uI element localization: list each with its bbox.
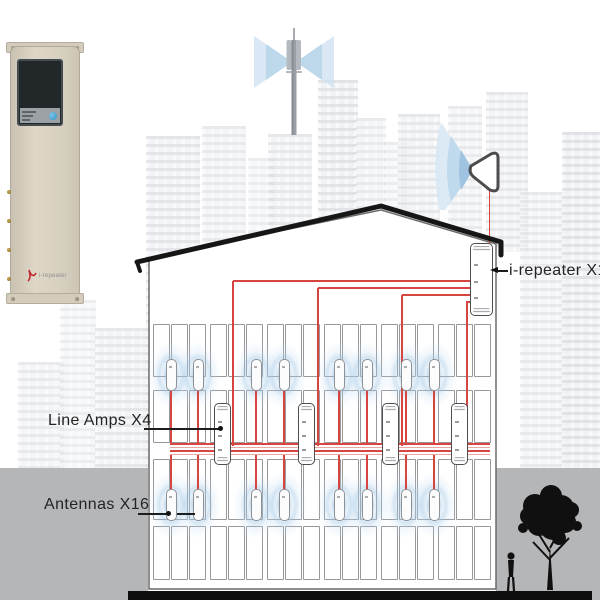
device-port (455, 421, 459, 423)
device-port (218, 421, 222, 423)
antenna-mark (282, 496, 285, 498)
antenna-mark (196, 366, 199, 368)
antenna-device (251, 359, 262, 391)
antenna-mark (169, 496, 172, 498)
signal-coverage-diagram: i-repeater i-repeater X1 Line Amps X4 An… (0, 0, 600, 600)
line-amp-device (298, 403, 315, 465)
antenna-mark (196, 496, 199, 498)
device-port (386, 449, 390, 451)
donor-antenna-icon (425, 110, 505, 210)
antenna-mark (432, 366, 435, 368)
antenna-device (429, 359, 440, 391)
line-amp-device (451, 403, 468, 465)
label-line-amps: Line Amps X4 (48, 412, 152, 430)
label-antennas: Antennas X16 (44, 496, 149, 514)
device-port (302, 421, 306, 423)
i-repeater-device (470, 243, 493, 316)
leader-dot (166, 511, 171, 516)
device-cap (473, 246, 490, 251)
device-cap (217, 406, 228, 411)
antenna-device (401, 359, 412, 391)
antenna-mark (337, 496, 340, 498)
antenna-device (251, 489, 262, 521)
device-cap (454, 457, 465, 462)
device-port (302, 435, 306, 437)
antenna-device (334, 489, 345, 521)
antenna-device (279, 489, 290, 521)
device-cap (217, 457, 228, 462)
leader-i-repeater (497, 270, 508, 272)
device-port (386, 435, 390, 437)
device-port (474, 281, 478, 283)
antenna-mark (282, 366, 285, 368)
device-port (455, 449, 459, 451)
antenna-device (362, 489, 373, 521)
antenna-mark (365, 496, 368, 498)
antenna-mark (169, 366, 172, 368)
device-port (218, 435, 222, 437)
device-cap (385, 457, 396, 462)
antenna-mark (404, 366, 407, 368)
antenna-device (362, 359, 373, 391)
antenna-device (334, 359, 345, 391)
antenna-device (166, 359, 177, 391)
antenna-device (429, 489, 440, 521)
line-amp-device (382, 403, 399, 465)
antenna-mark (337, 366, 340, 368)
device-cap (301, 406, 312, 411)
device-port (386, 421, 390, 423)
antenna-device (193, 489, 204, 521)
antenna-device (193, 359, 204, 391)
leader-dot (218, 426, 223, 431)
device-port (474, 297, 478, 299)
antenna-device (401, 489, 412, 521)
label-i-repeater: i-repeater X1 (509, 262, 600, 280)
leader-antennas-2 (177, 513, 195, 515)
device-cap (454, 406, 465, 411)
line-amp-device (214, 403, 231, 465)
arrowhead-icon (490, 267, 498, 273)
antenna-mark (254, 366, 257, 368)
antenna-device (279, 359, 290, 391)
antenna-device (166, 489, 177, 521)
antenna-mark (404, 496, 407, 498)
device-cap (301, 457, 312, 462)
antenna-mark (365, 366, 368, 368)
antenna-mark (254, 496, 257, 498)
device-port (474, 264, 478, 266)
device-port (218, 449, 222, 451)
leader-line-amps (144, 428, 220, 430)
device-cap (473, 308, 490, 313)
device-port (455, 435, 459, 437)
leader-antennas (138, 513, 167, 515)
device-port (302, 449, 306, 451)
device-cap (385, 406, 396, 411)
antenna-mark (432, 496, 435, 498)
